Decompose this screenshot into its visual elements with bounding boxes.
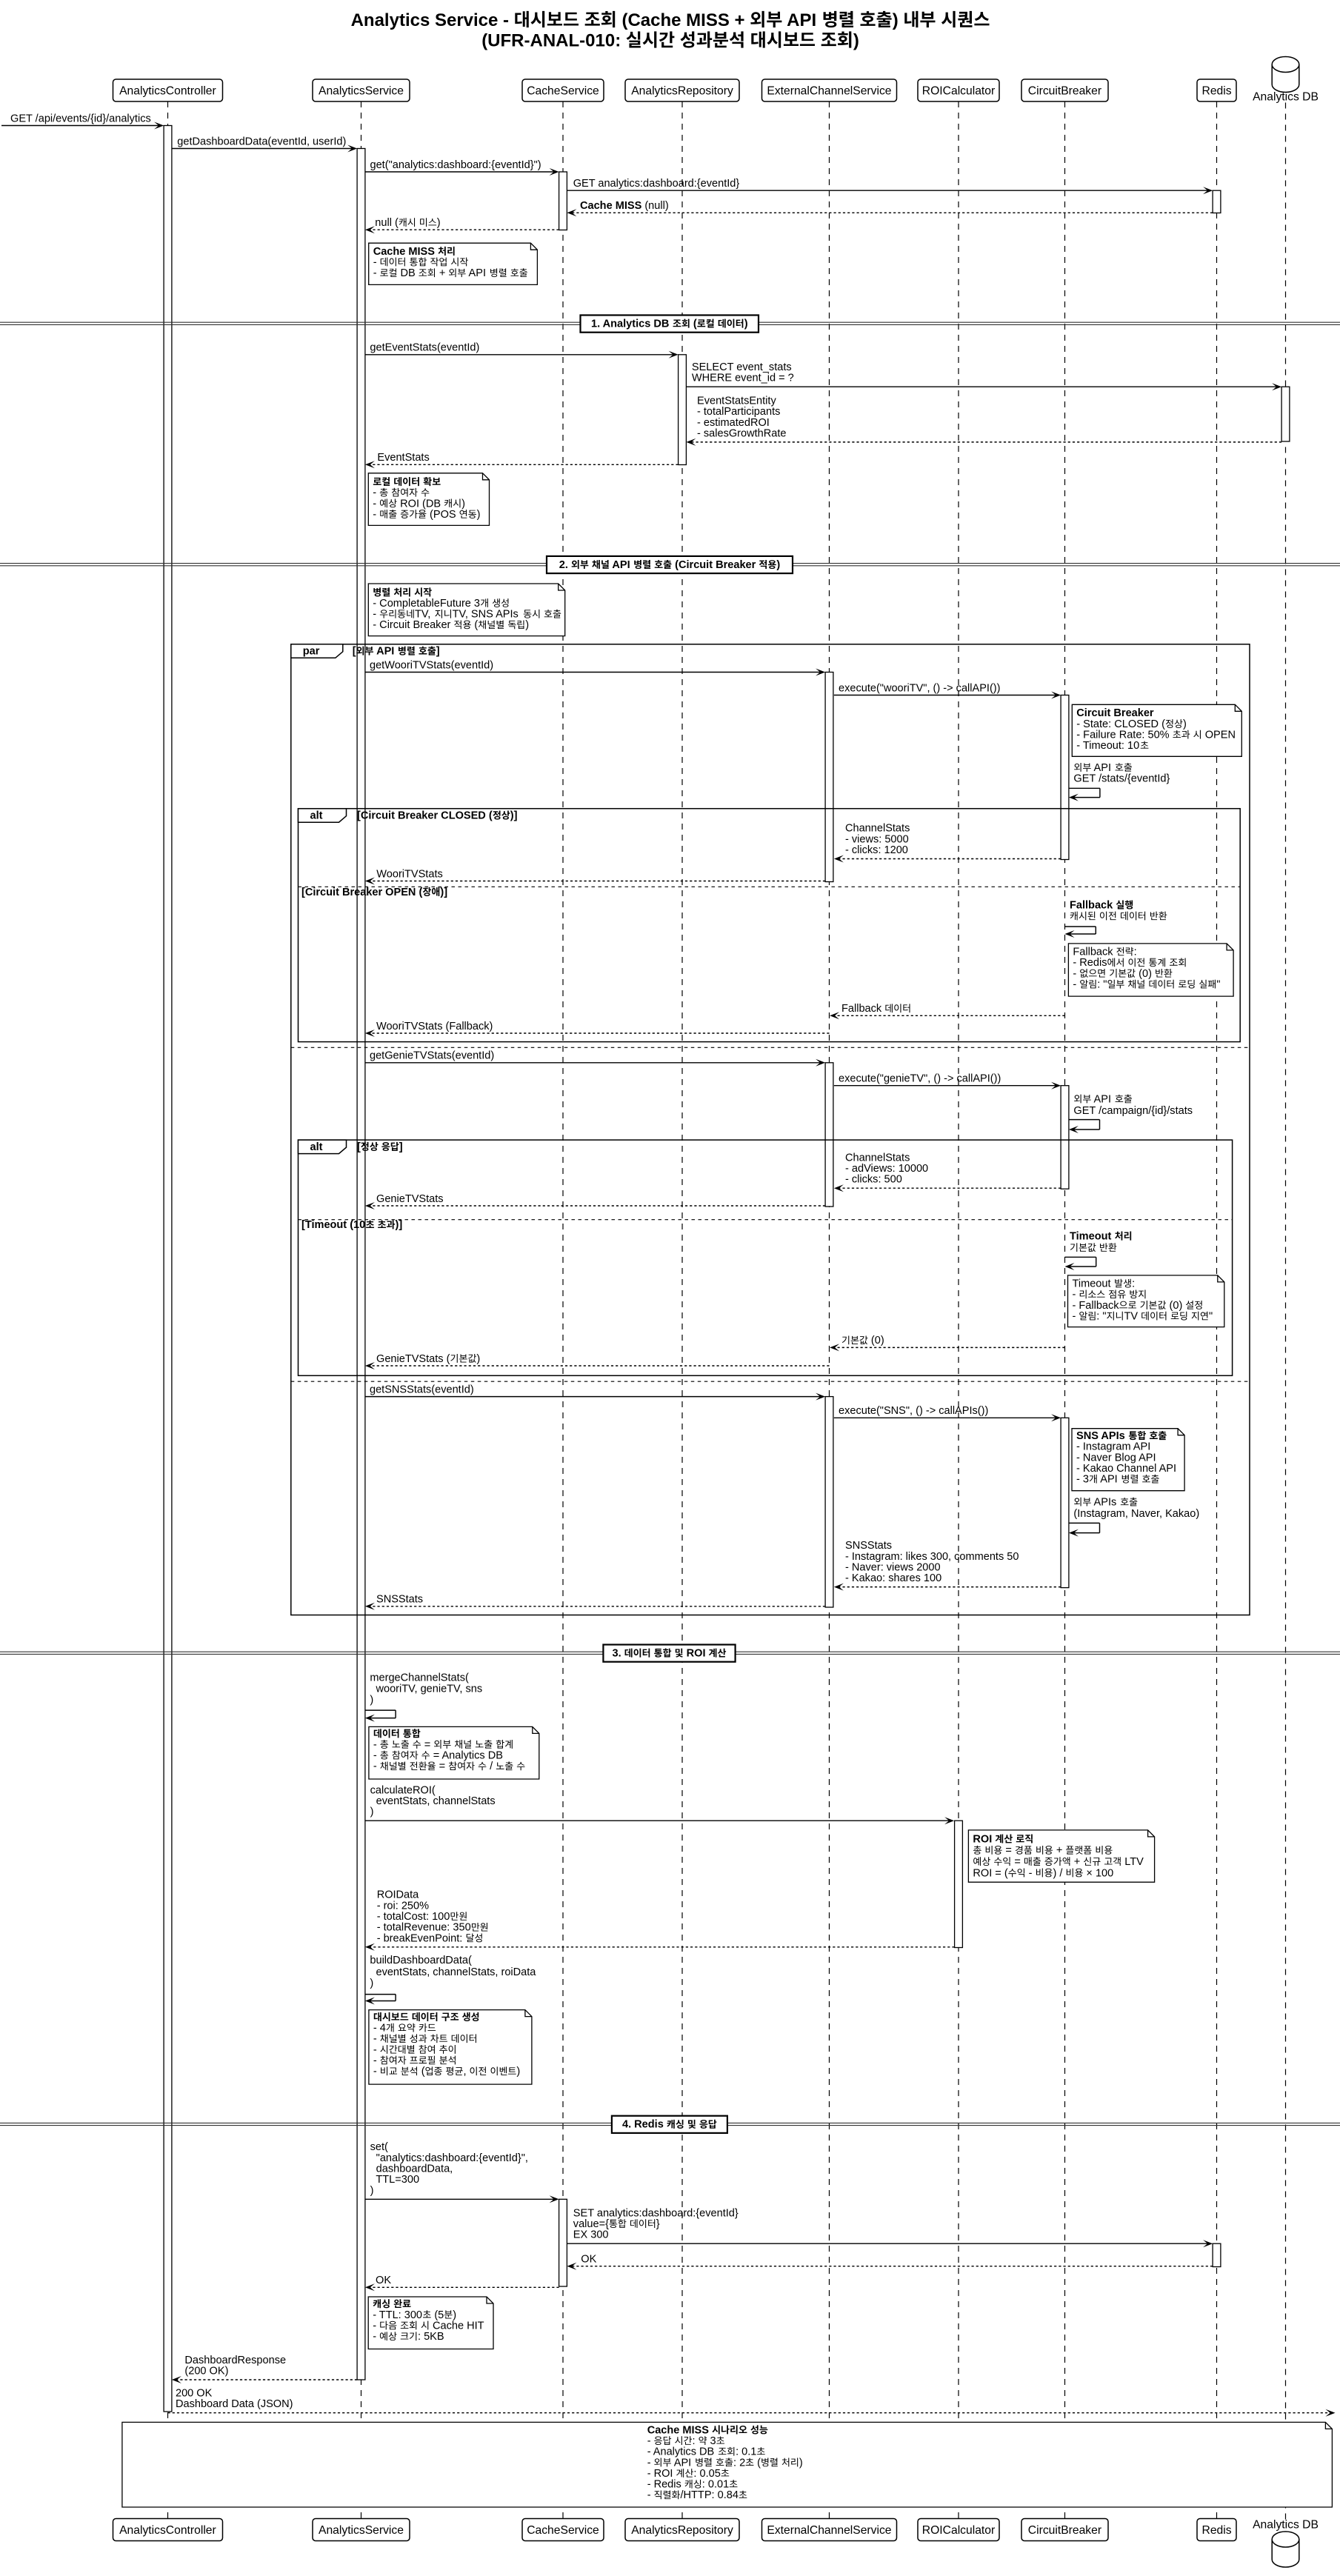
svg-text:execute("genieTV", () -> callA: execute("genieTV", () -> callAPI()) [839, 1073, 1001, 1085]
svg-text:AnalyticsService: AnalyticsService [319, 2524, 404, 2537]
svg-text:Cache MISS: Cache MISS [580, 200, 642, 212]
svg-text:200 OK: 200 OK [176, 2388, 213, 2400]
svg-text:WooriTVStats (Fallback): WooriTVStats (Fallback) [376, 1021, 493, 1032]
svg-text:: ": : " [1096, 1311, 1106, 1323]
svg-text::: : [693, 2435, 699, 2447]
svg-text:SNSStats: SNSStats [845, 1540, 892, 1552]
svg-text:execute("SNS", () -> callAPIs(: execute("SNS", () -> callAPIs()) [839, 1405, 988, 1417]
svg-text:4. Redis: 4. Redis [622, 2119, 667, 2131]
svg-text:3: 3 [707, 2435, 716, 2447]
svg-text:DB: DB [398, 267, 419, 279]
svg-text:SET analytics:dashboard:{event: SET analytics:dashboard:{eventId} [573, 2207, 739, 2219]
svg-text:null (: null ( [375, 217, 399, 229]
svg-text:API: API [672, 2457, 695, 2469]
svg-text:): ) [477, 509, 481, 521]
svg-text:- totalRevenue: 350: - totalRevenue: 350 [377, 1922, 471, 1934]
svg-text:Timeout: Timeout [1073, 1278, 1114, 1290]
svg-text:): ) [799, 2457, 803, 2469]
svg-text:GenieTVStats (: GenieTVStats ( [376, 1353, 450, 1365]
svg-text:-: - [373, 2066, 380, 2078]
svg-text:- clicks: 500: - clicks: 500 [845, 1174, 902, 1186]
svg-text:- State: CLOSED (: - State: CLOSED ( [1076, 718, 1165, 730]
svg-text:EventStatsEntity: EventStatsEntity [697, 395, 776, 407]
svg-text:): ) [776, 559, 780, 571]
svg-text:- Analytics DB: - Analytics DB [647, 2446, 718, 2458]
svg-text:) /: ) / [1053, 1867, 1066, 1879]
svg-text:)]: )] [440, 887, 447, 898]
svg-text:- Kakao Channel API: - Kakao Channel API [1076, 1463, 1176, 1475]
svg-text:Cache MISS: Cache MISS [647, 2424, 712, 2436]
svg-text:-: - [373, 509, 379, 521]
svg-text:=: = [436, 1761, 449, 1772]
svg-text:WooriTVStats: WooriTVStats [376, 868, 442, 880]
svg-text:GET /campaign/{id}/stats: GET /campaign/{id}/stats [1073, 1105, 1193, 1117]
svg-text:TV, SNS APIs: TV, SNS APIs [453, 609, 521, 621]
svg-text:EX 300: EX 300 [573, 2229, 609, 2241]
svg-text:-: - [1073, 1289, 1079, 1301]
svg-text:/HTTP: 0.84: /HTTP: 0.84 [681, 2489, 739, 2501]
svg-text:Fallback: Fallback [1070, 899, 1116, 911]
svg-text:: 0.01: : 0.01 [702, 2479, 729, 2491]
svg-text:- Failure Rate: 50%: - Failure Rate: 50% [1076, 730, 1172, 741]
svg-text:- salesGrowthRate: - salesGrowthRate [697, 427, 786, 439]
svg-text:]: ] [436, 646, 440, 658]
svg-text:): ) [461, 498, 465, 510]
svg-text:AnalyticsController: AnalyticsController [119, 85, 216, 98]
svg-text:): ) [893, 10, 904, 30]
svg-text:API: API [782, 10, 821, 30]
svg-text:(: ( [471, 619, 478, 631]
svg-text:-: - [647, 2457, 654, 2469]
svg-text:- CompletableFuture 3: - CompletableFuture 3 [373, 598, 480, 610]
svg-text:): ) [853, 31, 859, 51]
svg-text:WHERE event_id = ?: WHERE event_id = ? [692, 373, 794, 384]
svg-text:(0): (0) [1136, 968, 1155, 980]
svg-text:TV,: TV, [415, 609, 433, 621]
svg-text:-: - [373, 609, 379, 621]
svg-text:eventStats, channelStats, roiD: eventStats, channelStats, roiData [370, 1966, 536, 1978]
svg-text:-: - [373, 1750, 380, 1762]
svg-text:-: - [373, 498, 379, 510]
svg-text:OK: OK [376, 2275, 391, 2286]
svg-text:- 3: - 3 [1076, 1474, 1089, 1486]
svg-text:): ) [370, 1978, 373, 1989]
svg-text:)]: )] [510, 810, 518, 821]
svg-text:GET /stats/{eventId}: GET /stats/{eventId} [1073, 773, 1170, 784]
svg-text:]: ] [399, 1141, 403, 1153]
svg-text:-: - [373, 2044, 380, 2056]
svg-text:-: - [373, 1761, 380, 1772]
svg-text:ROI = (: ROI = ( [973, 1867, 1007, 1879]
svg-text:Fallback: Fallback [1073, 947, 1116, 958]
svg-text:Circuit Breaker: Circuit Breaker [1076, 707, 1154, 719]
svg-text:AnalyticsRepository: AnalyticsRepository [631, 85, 733, 98]
svg-text:ROICalculator: ROICalculator [922, 2524, 995, 2537]
svg-text:OK: OK [581, 2254, 596, 2266]
svg-text::: : [1134, 947, 1137, 958]
svg-text:[Circuit Breaker CLOSED (: [Circuit Breaker CLOSED ( [357, 810, 493, 821]
svg-text:- Instagram: likes 300, commen: - Instagram: likes 300, comments 50 [845, 1551, 1019, 1563]
svg-text:get("analytics:dashboard:{even: get("analytics:dashboard:{eventId}") [370, 159, 541, 171]
svg-text:Cache MISS: Cache MISS [373, 246, 438, 258]
svg-text:-: - [373, 2320, 379, 2332]
svg-text:API: API [1098, 1474, 1121, 1486]
svg-text:- estimatedROI: - estimatedROI [697, 417, 770, 429]
svg-text:(0): (0) [868, 1335, 884, 1347]
svg-text:- Timeout: 10: - Timeout: 10 [1076, 740, 1139, 752]
svg-text:getGenieTVStats(eventId): getGenieTVStats(eventId) [370, 1050, 494, 1062]
svg-text:AnalyticsService: AnalyticsService [319, 85, 404, 98]
svg-text:APIs: APIs [1091, 1497, 1119, 1509]
svg-text:CacheService: CacheService [527, 85, 599, 98]
svg-text:par: par [303, 646, 320, 658]
svg-text:Analytics Service -: Analytics Service - [351, 10, 514, 30]
svg-text:= Analytics DB: = Analytics DB [430, 1750, 503, 1762]
svg-text::: : [1132, 1278, 1135, 1290]
svg-text:EventStats: EventStats [377, 452, 429, 464]
svg-text:): ) [525, 619, 529, 631]
svg-text:getSNSStats(eventId): getSNSStats(eventId) [370, 1384, 474, 1395]
svg-text:(UFR-ANAL-010:: (UFR-ANAL-010: [481, 31, 626, 51]
svg-text:OPEN: OPEN [1202, 730, 1236, 741]
svg-text:API: API [374, 646, 398, 658]
svg-text:": " [1209, 1311, 1213, 1323]
svg-text:ROICalculator: ROICalculator [922, 85, 995, 98]
svg-text:-: - [373, 1739, 380, 1751]
svg-text:(Instagram, Naver, Kakao): (Instagram, Naver, Kakao) [1073, 1508, 1199, 1520]
svg-text:getDashboardData(eventId, user: getDashboardData(eventId, userId) [177, 136, 346, 147]
svg-text:API: API [1091, 762, 1114, 774]
svg-text:ROI: ROI [973, 1833, 995, 1845]
svg-text:-: - [373, 2033, 380, 2045]
svg-text:ROIData: ROIData [377, 1889, 419, 1901]
svg-text:- TTL: 300: - TTL: 300 [373, 2309, 422, 2321]
svg-text:-: - [373, 487, 379, 499]
svg-text:): ) [370, 1806, 374, 1818]
svg-text:): ) [476, 1353, 480, 1365]
svg-text:GenieTVStats: GenieTVStats [376, 1193, 444, 1205]
svg-text:- totalParticipants: - totalParticipants [697, 406, 780, 418]
svg-text:CircuitBreaker: CircuitBreaker [1028, 2524, 1101, 2537]
svg-text:SNSStats: SNSStats [376, 1594, 423, 1606]
svg-text:[: [ [357, 1141, 361, 1153]
svg-text:2.: 2. [559, 559, 571, 571]
svg-text:set(: set( [370, 2141, 388, 2153]
svg-text:: ": : " [1097, 979, 1107, 991]
svg-text:getEventStats(eventId): getEventStats(eventId) [370, 342, 479, 354]
svg-text:-: - [1073, 1311, 1079, 1323]
svg-text:execute("wooriTV", () -> callA: execute("wooriTV", () -> callAPI()) [839, 682, 1000, 694]
svg-text:AnalyticsRepository: AnalyticsRepository [631, 2524, 733, 2537]
svg-text:- Fallback: - Fallback [1073, 1300, 1120, 1312]
svg-text:API: API [466, 267, 489, 279]
svg-text:buildDashboardData(: buildDashboardData( [370, 1955, 472, 1966]
svg-text:(: ( [690, 318, 697, 330]
svg-text:- ROI: - ROI [647, 2468, 676, 2480]
svg-text:=: = [421, 1739, 434, 1751]
svg-text:ROI: ROI [684, 1648, 709, 1660]
svg-text:- roi: 250%: - roi: 250% [377, 1900, 429, 1912]
svg-text:- Naver Blog API: - Naver Blog API [1076, 1452, 1156, 1464]
svg-text:: 0.1: : 0.1 [736, 2446, 756, 2458]
svg-text:SELECT event_stats: SELECT event_stats [692, 361, 792, 373]
svg-text:/: / [487, 1761, 496, 1772]
svg-text:- Redis: - Redis [647, 2479, 684, 2491]
svg-text:Cache HIT: Cache HIT [430, 2320, 484, 2332]
svg-text:- Redis: - Redis [1073, 957, 1107, 969]
svg-text:-: - [647, 2489, 654, 2501]
svg-text:- totalCost: 100: - totalCost: 100 [377, 1911, 450, 1923]
svg-text:): ) [1183, 718, 1187, 730]
svg-text:- Kakao: shares 100: - Kakao: shares 100 [845, 1572, 941, 1584]
svg-text:Timeout: Timeout [1070, 1230, 1114, 1242]
svg-text:=: = [1002, 1845, 1015, 1857]
svg-text:=: = [1011, 1856, 1024, 1868]
svg-text:AnalyticsController: AnalyticsController [119, 2524, 216, 2537]
svg-text:- Circuit Breaker: - Circuit Breaker [373, 619, 453, 631]
svg-text:(: ( [754, 2457, 761, 2469]
svg-text:,: , [464, 2066, 470, 2078]
svg-text:value={: value={ [573, 2218, 609, 2230]
svg-text:SNS APIs: SNS APIs [1076, 1430, 1128, 1442]
svg-text:alt: alt [310, 1141, 323, 1153]
svg-text:API: API [1091, 1093, 1114, 1105]
svg-text:ChannelStats: ChannelStats [845, 823, 910, 835]
svg-text:(0): (0) [1167, 1300, 1186, 1312]
svg-text:LTV: LTV [1121, 1856, 1144, 1868]
svg-text:(200 OK): (200 OK) [184, 2366, 228, 2378]
svg-text:Redis: Redis [1202, 2524, 1232, 2537]
svg-text:Redis: Redis [1202, 85, 1232, 98]
svg-text:calculateROI(: calculateROI( [370, 1784, 436, 1796]
svg-text:Fallback: Fallback [841, 1003, 884, 1015]
svg-text:CacheService: CacheService [527, 2524, 599, 2537]
svg-text:3.: 3. [613, 1648, 624, 1660]
svg-text:Analytics DB: Analytics DB [1253, 2519, 1319, 2532]
svg-text:): ) [370, 2185, 374, 2197]
svg-text:": " [1216, 979, 1220, 991]
svg-text:: 2: : 2 [733, 2457, 745, 2469]
svg-text:}: } [656, 2218, 660, 2230]
svg-text:[: [ [353, 646, 356, 658]
svg-text:[Timeout (10: [Timeout (10 [301, 1219, 365, 1231]
svg-text:-: - [373, 2055, 380, 2066]
svg-text:Dashboard Data (JSON): Dashboard Data (JSON) [176, 2398, 293, 2410]
svg-text:(Circuit Breaker: (Circuit Breaker [672, 559, 759, 571]
svg-text:-: - [647, 2435, 654, 2447]
svg-text:): ) [370, 1694, 373, 1706]
svg-text:getWooriTVStats(eventId): getWooriTVStats(eventId) [370, 659, 493, 671]
svg-text:TV: TV [1124, 1311, 1141, 1323]
svg-text:ExternalChannelService: ExternalChannelService [767, 85, 891, 98]
svg-text:+: + [436, 267, 449, 279]
svg-text:(null): (null) [641, 200, 668, 212]
svg-text:)]: )] [396, 1219, 403, 1231]
svg-text:-: - [1073, 968, 1079, 980]
svg-text:-: - [373, 256, 380, 268]
svg-text:"analytics:dashboard:{eventId}: "analytics:dashboard:{eventId}", [370, 2152, 528, 2164]
svg-text:eventStats, channelStats: eventStats, channelStats [370, 1795, 496, 1807]
svg-text:dashboardData,: dashboardData, [370, 2163, 453, 2175]
svg-text:[Circuit Breaker OPEN (: [Circuit Breaker OPEN ( [301, 887, 422, 898]
svg-text:): ) [516, 2066, 520, 2078]
svg-text:1. Analytics DB: 1. Analytics DB [591, 318, 672, 330]
svg-text:-: - [1026, 1867, 1036, 1879]
svg-text:(: ( [419, 2066, 425, 2078]
svg-text:: 5KB: : 5KB [418, 2331, 444, 2343]
svg-text:(5: (5 [431, 2309, 444, 2321]
svg-text:ROI (DB: ROI (DB [397, 498, 444, 510]
svg-text:mergeChannelStats(: mergeChannelStats( [370, 1672, 469, 1684]
svg-text:CircuitBreaker: CircuitBreaker [1028, 85, 1101, 98]
svg-text:(Cache MISS +: (Cache MISS + [617, 10, 750, 30]
svg-text:-: - [1073, 979, 1079, 991]
svg-text:): ) [437, 217, 441, 229]
svg-text:+: + [1071, 1856, 1084, 1868]
svg-text:- 4: - 4 [373, 2023, 386, 2035]
svg-text:- views: 5000: - views: 5000 [845, 833, 909, 845]
svg-text:× 100: × 100 [1083, 1867, 1113, 1879]
svg-text:-: - [373, 2331, 379, 2343]
svg-text:TTL=300: TTL=300 [370, 2174, 419, 2186]
svg-text:- breakEvenPoint:: - breakEvenPoint: [377, 1932, 466, 1944]
svg-text:: 0.05: : 0.05 [693, 2468, 720, 2480]
svg-text:GET /api/events/{id}/analytics: GET /api/events/{id}/analytics [10, 113, 151, 124]
svg-text:alt: alt [310, 810, 323, 821]
svg-text:GET analytics:dashboard:{event: GET analytics:dashboard:{eventId} [573, 178, 740, 190]
svg-text:- adViews: 10000: - adViews: 10000 [845, 1163, 928, 1175]
svg-text:): ) [744, 318, 748, 330]
svg-text:+: + [1053, 1845, 1066, 1857]
svg-text:-: - [373, 267, 380, 279]
svg-text:(POS: (POS [427, 509, 459, 521]
svg-text:- clicks: 1200: - clicks: 1200 [845, 844, 908, 856]
svg-text:ChannelStats: ChannelStats [845, 1152, 910, 1164]
svg-text:Analytics DB: Analytics DB [1253, 91, 1319, 104]
svg-text:ExternalChannelService: ExternalChannelService [767, 2524, 891, 2537]
svg-text:API: API [610, 559, 633, 571]
svg-text:- Instagram API: - Instagram API [1076, 1441, 1150, 1453]
svg-text:): ) [453, 2309, 456, 2321]
svg-text:- Naver: views 2000: - Naver: views 2000 [845, 1561, 941, 1573]
svg-text:DashboardResponse: DashboardResponse [184, 2355, 286, 2366]
svg-text:wooriTV, genieTV, sns: wooriTV, genieTV, sns [370, 1684, 482, 1695]
